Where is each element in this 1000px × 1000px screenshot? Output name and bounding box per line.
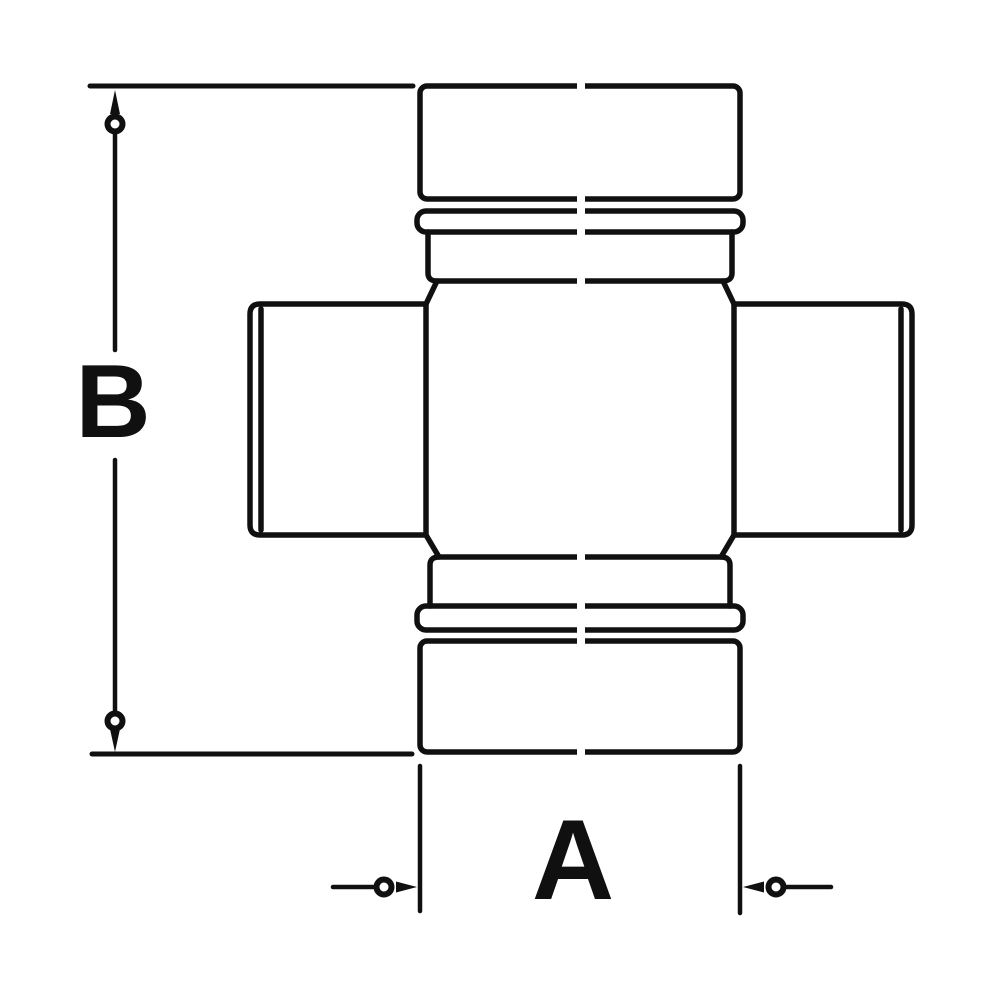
dim-a-ring-left [377,880,392,895]
bottom-right-chamfer [721,535,734,557]
dim-b-ring-bottom [108,714,123,729]
top-left-chamfer [426,281,437,304]
dimension-labels: B A [75,344,614,924]
dim-a-ring-right [769,880,784,895]
seam-top [577,80,585,292]
top-right-chamfer [723,281,734,304]
centerline-seam [577,80,585,760]
dim-a-arrowhead-left [743,882,764,893]
dim-b-ring-top [108,117,123,132]
drawing-canvas: B A [0,0,1000,1000]
dim-b-arrowhead-down [110,729,120,752]
dim-b-label: B [75,344,150,460]
left-trunnion [250,304,426,535]
seam-bottom [577,549,585,760]
dim-a-arrowhead-right [396,882,417,893]
ujoint-dimension-drawing: B A [0,0,1000,1000]
right-trunnion [734,304,912,535]
dim-b-arrowhead-up [110,90,120,114]
bottom-left-chamfer [426,535,439,557]
dim-a-label: A [532,797,614,924]
